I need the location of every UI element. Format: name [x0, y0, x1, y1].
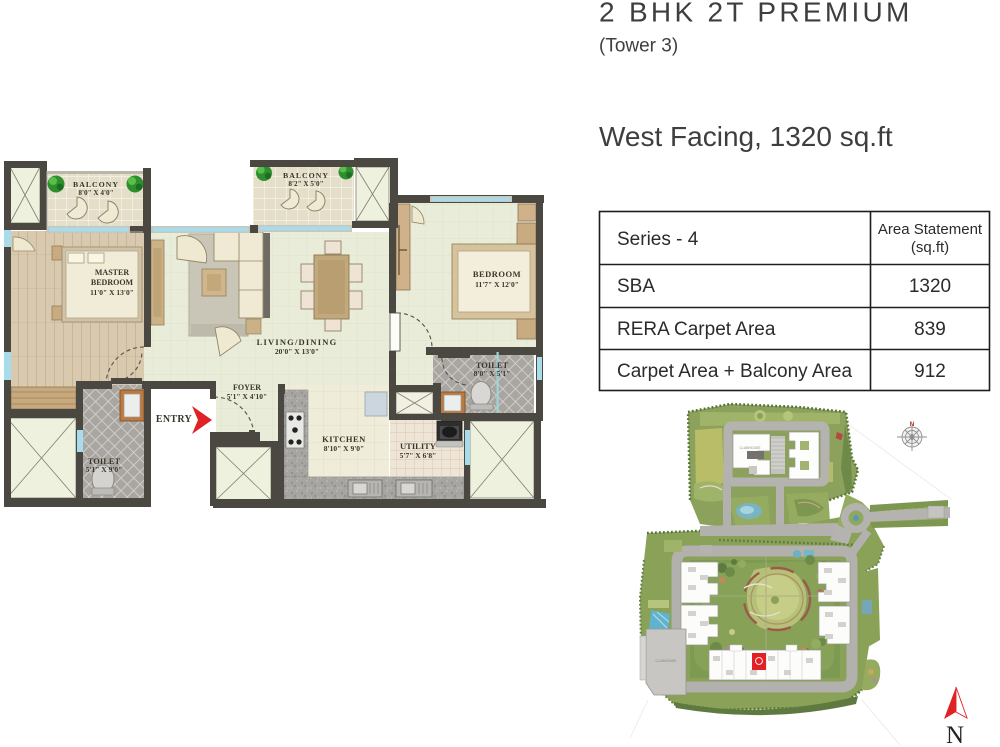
svg-text:8'2" X 5'0": 8'2" X 5'0": [288, 180, 323, 188]
svg-text:RERA Carpet Area: RERA Carpet Area: [617, 319, 776, 340]
svg-text:(sq.ft): (sq.ft): [911, 239, 949, 256]
svg-text:Carpet Area + Balcony Area: Carpet Area + Balcony Area: [617, 361, 852, 382]
svg-text:912: 912: [914, 361, 946, 382]
svg-text:11'7" X 12'0": 11'7" X 12'0": [475, 280, 519, 289]
svg-text:5'1" X 9'0": 5'1" X 9'0": [86, 465, 123, 474]
svg-text:N: N: [946, 722, 964, 747]
svg-text:SBA: SBA: [617, 276, 655, 297]
svg-text:1320: 1320: [909, 276, 951, 297]
svg-text:5'1" X 4'10": 5'1" X 4'10": [227, 392, 267, 401]
svg-text:Series - 4: Series - 4: [617, 229, 699, 250]
svg-text:8'0" X 5'1": 8'0" X 5'1": [474, 369, 511, 378]
svg-text:11'0" X 13'0": 11'0" X 13'0": [90, 288, 134, 297]
svg-text:8'0" X 4'0": 8'0" X 4'0": [78, 189, 113, 197]
svg-text:5'7" X 6'8": 5'7" X 6'8": [400, 451, 437, 460]
svg-text:CLUBHOUSE: CLUBHOUSE: [739, 446, 761, 450]
svg-text:UTILITY: UTILITY: [400, 441, 436, 451]
svg-text:(Tower 3): (Tower 3): [599, 36, 678, 57]
svg-text:BALCONY: BALCONY: [73, 180, 119, 189]
svg-text:CLUBHOUSE: CLUBHOUSE: [655, 659, 677, 663]
svg-text:8'10" X 9'0": 8'10" X 9'0": [324, 444, 364, 453]
svg-text:839: 839: [914, 319, 946, 340]
svg-text:ENTRY: ENTRY: [156, 414, 193, 425]
svg-text:MASTER: MASTER: [95, 268, 129, 277]
svg-text:20'0" X 13'0": 20'0" X 13'0": [275, 347, 319, 356]
svg-text:BEDROOM: BEDROOM: [473, 269, 521, 279]
svg-text:West Facing, 1320 sq.ft: West Facing, 1320 sq.ft: [599, 121, 893, 152]
svg-text:FOYER: FOYER: [233, 383, 261, 392]
svg-text:KITCHEN: KITCHEN: [322, 434, 366, 444]
svg-text:BALCONY: BALCONY: [283, 171, 329, 180]
svg-text:BEDROOM: BEDROOM: [91, 278, 134, 287]
svg-text:LIVING/DINING: LIVING/DINING: [257, 337, 338, 347]
svg-text:Area Statement: Area Statement: [878, 221, 983, 238]
svg-text:2 BHK 2T PREMIUM: 2 BHK 2T PREMIUM: [599, 0, 913, 28]
svg-text:N: N: [910, 421, 915, 428]
